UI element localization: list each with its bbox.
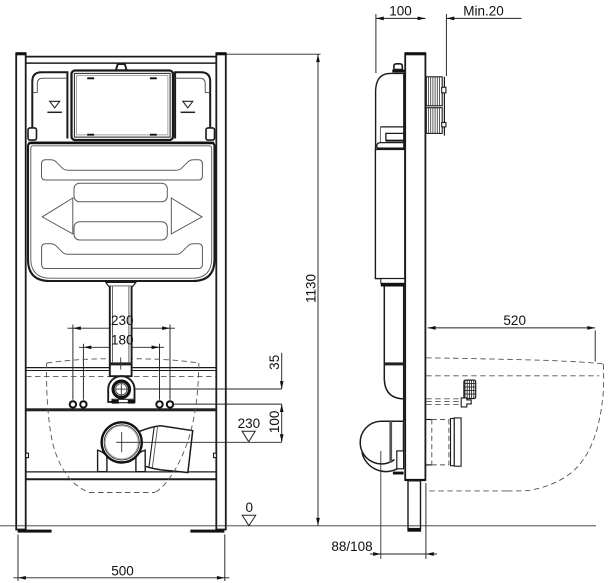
svg-text:520: 520	[503, 313, 526, 328]
svg-text:230: 230	[111, 313, 134, 328]
svg-text:230: 230	[238, 416, 261, 431]
svg-text:88/108: 88/108	[331, 539, 372, 554]
svg-text:500: 500	[111, 564, 134, 579]
svg-text:180: 180	[111, 333, 134, 348]
svg-text:Min.20: Min.20	[463, 4, 504, 19]
svg-text:0: 0	[246, 500, 254, 515]
svg-text:100: 100	[389, 4, 412, 19]
svg-text:1130: 1130	[303, 274, 318, 303]
svg-text:35: 35	[267, 355, 282, 370]
svg-text:100: 100	[267, 411, 282, 434]
